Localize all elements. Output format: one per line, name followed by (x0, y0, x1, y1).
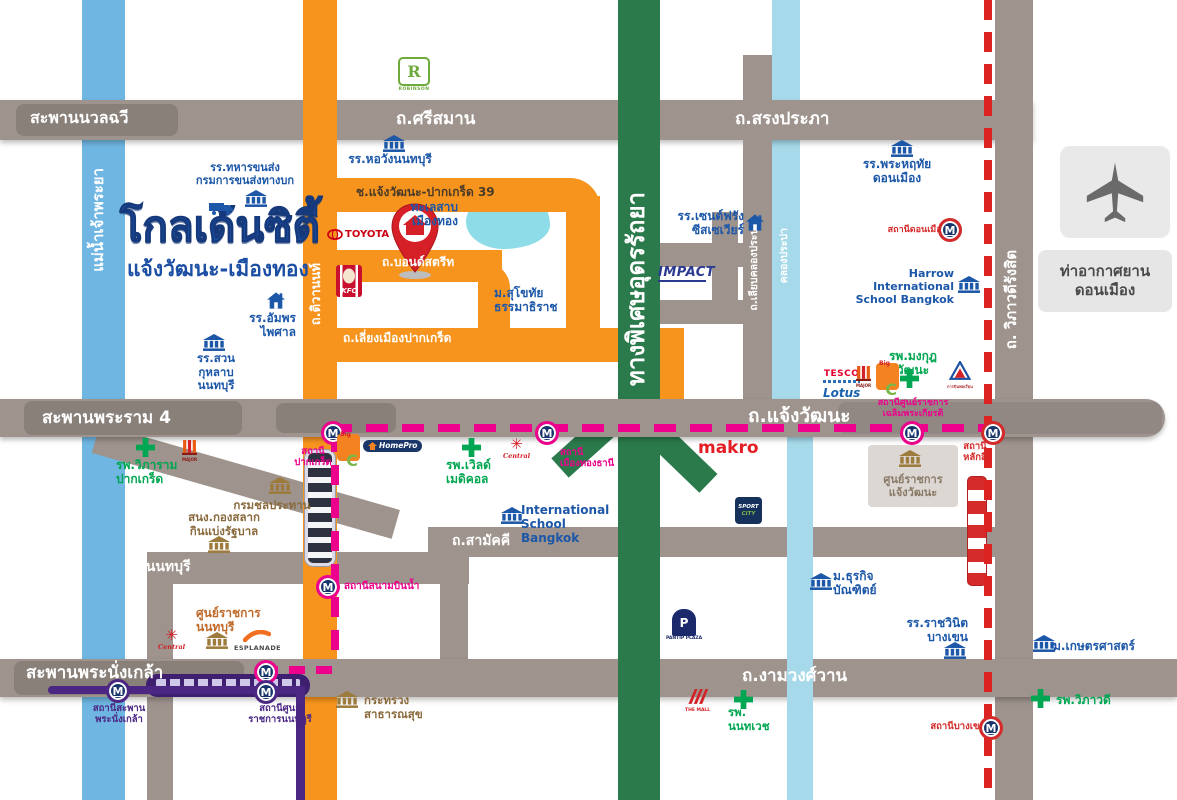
landmark-amphon-school: รร.อัมพร ไพศาล (228, 311, 296, 339)
landmark-worldmedical-hospital: รพ.เวิลด์ เมดิคอล (446, 458, 508, 486)
mrt-pink-line-dashed-h (330, 424, 988, 432)
bigc-logo-west: BigC (337, 434, 360, 461)
landmark-dhurakij-university: ม.ธุรกิจ บัณฑิตย์ (833, 569, 891, 597)
road-tiwanon-label: ถ.ติวานนท์ (309, 263, 324, 325)
station-chalermprakiat-label: สถานีศูนย์ราชการ เฉลิมพระเกียรติ (866, 398, 960, 419)
m-station-icon-phranangklao: M (106, 679, 130, 703)
landmark-kasetsart-university: ม.เกษตรศาสตร์ (1053, 639, 1153, 653)
map-canvas: โกลเด้นซิตี้ แจ้งวัฒนะ-เมืองทอง ท่าอากาศ… (0, 0, 1177, 800)
landmark-horwang-school: รร.หอวังนนทบุรี (340, 152, 440, 166)
bank-icon-govcomplex-nb (206, 632, 228, 649)
bank-icon-dhurakij (810, 573, 832, 590)
station-pakkred-label: สถานี ปากเกร็ด (291, 446, 335, 468)
station-phranangklao-label: สถานีสะพาน พระนั่งเกล้า (82, 703, 156, 725)
river-chaophraya-label: แม่น้ำเจ้าพระยา (90, 168, 108, 272)
bank-icon-phrahruethai (891, 140, 913, 157)
bank-icon-military-transport (245, 190, 267, 207)
landmark-isb-school: International School Bangkok (521, 503, 616, 545)
central-logo-civicnb: ✳Central (158, 628, 185, 651)
truck-icon-military-transport (209, 202, 233, 215)
pantip-logo: PPANTIP PLAZA (666, 609, 702, 642)
kfc-logo: KFC (336, 265, 362, 297)
svg-text:KFC: KFC (341, 287, 357, 295)
prapa-canal-north (772, 0, 800, 420)
road-chaengwattana-label: ถ.แจ้งวัฒนะ (748, 405, 850, 427)
toyota-logo: TOYOTA (327, 229, 389, 240)
m-station-icon-laksi: M (981, 421, 1005, 445)
prapa-canal-south (787, 420, 813, 800)
bank-icon-govcomplex-cw (899, 450, 921, 467)
road-srisaman-label: ถ.ศรีสมาน (396, 109, 475, 129)
cross-icon-vibhavadi (1031, 689, 1050, 708)
themall-logo: THE MALL (685, 689, 710, 714)
road-songprapha-label: ถ.สรงประภา (735, 109, 829, 129)
house-icon-amphon (267, 292, 285, 309)
road-ngamwongwan-label: ถ.งามวงศ์วาน (742, 666, 847, 686)
tesco-lotus-logo: TESCOLotus (823, 363, 860, 400)
robinson-logo: RROBINSON (398, 57, 430, 93)
m-station-icon-mueangthong: M (535, 421, 559, 445)
bridge-rama4-label: สะพานพระราม 4 (42, 408, 171, 428)
central-logo-worldmed: ✳Central (503, 437, 530, 460)
station-mueangthongthani-label: สถานี เมืองทองธานี (560, 447, 622, 469)
m-station-icon-bangkhen: M (979, 716, 1003, 740)
expressway-udonratthaya-label: ทางพิเศษอุดรรัถยา (622, 192, 650, 386)
major-cineplex-logo-north: MAJOR (856, 366, 871, 388)
landmark-stfrancis-school: รร.เซนต์ฟรัง ซีสเซเวียร์ (664, 209, 744, 237)
canal-klongprapa-label: คลองประปา (778, 228, 790, 283)
bridge-phranangklao-label: สะพานพระนั่งเกล้า (26, 663, 163, 683)
bigc-logo-north: BigC (876, 363, 899, 390)
bank-icon-rajavinit (944, 642, 966, 659)
m-station-icon-donmueang: M (938, 218, 962, 242)
bridge-nuanchawee-label: สะพานนวลฉวี (30, 109, 128, 128)
road-soi39-label: ช.แจ้งวัฒนะ-ปากเกร็ด 39 (356, 185, 495, 199)
landmark-government-complex-cw: ศูนย์ราชการ แจ้งวัฒนะ (872, 474, 954, 500)
homepro-logo: HomePro (363, 440, 422, 452)
bank-icon-suankularb (203, 334, 225, 351)
road-samakkhi (428, 527, 1033, 557)
landmark-nonthavej-hospital: รพ. นนทเวช (728, 706, 778, 733)
road-nonthaburi-label: ถ.นนทบุรี (132, 559, 191, 576)
landmark-military-transport-school: รร.ทหารขนส่ง กรมการขนส่งทางบก (188, 162, 302, 188)
m-station-icon-chalermprakiat: M (900, 421, 924, 445)
station-sanambinnam-label: สถานีสนามบินน้ำ (344, 581, 436, 593)
airport-icon-box (1060, 146, 1170, 238)
landmark-health-ministry: กระทรวง สาธารณสุข (364, 694, 436, 721)
landmark-viphuram-hospital: รพ.วิภาราม ปากเกร็ด (116, 458, 190, 486)
logo-makro: makro (698, 438, 759, 458)
airplane-icon (1083, 160, 1147, 224)
cross-icon-nonthavej (734, 690, 753, 709)
bank-icon-harrow (958, 276, 980, 293)
srt-red-line-dashed (984, 0, 992, 800)
sportcity-logo: SPORTCITY (735, 497, 762, 524)
cross-icon-viphuram (136, 438, 155, 457)
m-station-icon-sanambinnam: M (316, 575, 340, 599)
bank-icon-lottery (208, 536, 230, 553)
road-liabklongprapa-label: ถ.เลียบคลองประปา (748, 222, 760, 311)
road-bondstreet-label: ถ.บอนด์สตรีท (382, 255, 454, 269)
road-vibhavadi-label: ถ. วิภาวดีรังสิต (1003, 250, 1021, 349)
house-icon-stfrancis (746, 214, 764, 231)
bank-icon-isb (501, 507, 523, 524)
impact-logo: IMPACT (658, 263, 715, 282)
bank-icon-health-ministry (336, 691, 358, 708)
cross-icon-mongkut (900, 369, 919, 388)
civil-aviation-logo: การบินพลเรือน (947, 361, 973, 389)
landmark-phrahruethai-school: รร.พระหฤทัย ดอนเมือง (853, 157, 941, 185)
landmark-suankularb-school: รร.สวน กุหลาบ นนทบุรี (186, 352, 246, 393)
station-civic-nonthaburi-label: สถานีศูนย์ ราชการนนทบุรี (236, 703, 324, 725)
esplanade-logo: ESPLANADE (234, 629, 281, 652)
station-donmueang-label: สถานีดอนเมือง (882, 225, 946, 236)
landmark-rajavinit-school: รร.ราชวินิต บางเขน (896, 616, 968, 644)
major-cineplex-logo-west: MAJOR (182, 440, 197, 462)
cross-icon-worldmed (462, 438, 481, 457)
m-station-icon-civicnon-purple: M (254, 680, 278, 704)
landmark-vibhavadi-hospital: รพ.วิภาวดี (1056, 693, 1128, 707)
road-samakkhi-label: ถ.สามัคคี (452, 533, 510, 550)
landmark-lottery-office: สนง.กองสลาก กินแบ่งรัฐบาล (180, 511, 268, 538)
project-subtitle: แจ้งวัฒนะ-เมืองทอง (127, 258, 309, 281)
landmark-sukhothai-university: ม.สุโขทัย ธรรมาธิราช (494, 286, 566, 314)
landmark-muangthong-lake: ทะเลสาบ เมืองทอง (394, 200, 458, 228)
road-liangmueang-label: ถ.เลี่ยงเมืองปากเกร็ด (343, 331, 451, 345)
bank-icon-kasetsart (1033, 635, 1055, 652)
bank-icon-irrigation (269, 477, 291, 494)
airport-label-box: ท่าอากาศยาน ดอนเมือง (1038, 250, 1172, 312)
airport-label: ท่าอากาศยาน ดอนเมือง (1060, 262, 1150, 300)
station-bangkhen-label: สถานีบางเขน (922, 721, 986, 732)
bank-icon-horwang (383, 135, 405, 152)
landmark-harrow-school: Harrow International School Bangkok (834, 268, 954, 307)
